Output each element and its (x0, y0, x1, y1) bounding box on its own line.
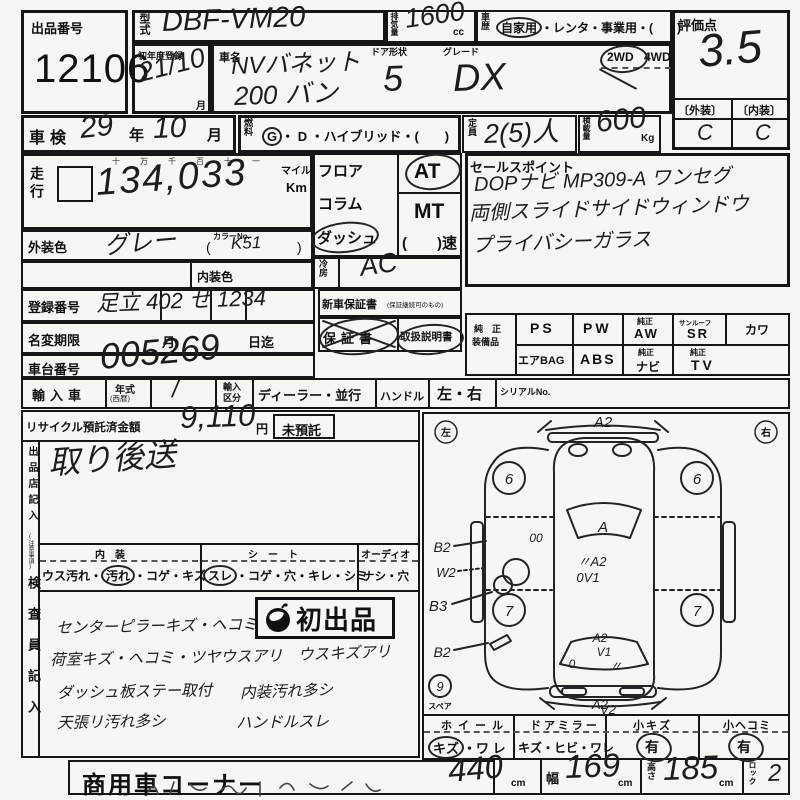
inspector-note-1: センターピラーキズ・ヘコミ (56, 612, 258, 638)
color-no-value: K51 (231, 233, 262, 254)
warranty-note: (保証継続可のもの) (387, 299, 443, 309)
name-change-label: 名変期限 (28, 330, 80, 349)
not-deposited-box: 未預託 (273, 414, 335, 439)
seller-label: 出品店記入 (24, 446, 39, 538)
ac-label: 冷房 (317, 259, 330, 286)
lock-label: ロック (747, 761, 758, 793)
lot-label: 出品番号 (31, 18, 83, 37)
door-shape-label: ドア形状 (371, 45, 407, 58)
inspector-note-4: 天張リ汚れ多シ (57, 709, 166, 733)
height-label: 高さ (645, 762, 658, 792)
handle-label: ハンドル (380, 388, 424, 404)
shift-floor: フロア (318, 160, 363, 181)
name-change-day: 日迄 (248, 332, 274, 351)
width-value: 169 (564, 746, 620, 786)
interior-grade-label: 〔内装〕 (737, 102, 781, 118)
mark-front-a2: A2 (593, 414, 613, 431)
audio-check-header: オーディオ (361, 546, 410, 561)
history-label: 車歴 (479, 12, 492, 41)
seat-check-selected: スレ (203, 565, 237, 586)
equip-airbag: エアBAG (518, 352, 564, 368)
equipment-label: 純 正 (474, 322, 501, 335)
mark-rear-0: 0 (569, 657, 576, 671)
width-label: 幅 (546, 768, 559, 787)
inspector-note-3b: 内装汚れ多シ (240, 678, 334, 703)
mark-wheel-fl: 6 (505, 471, 514, 488)
shaken-year: 29 (78, 109, 115, 146)
handle-value: 左・右 (437, 383, 482, 404)
displacement-label: 排気量 (389, 12, 400, 41)
damage-blob-b3 (503, 559, 529, 585)
import-division: ディーラー・並行 (258, 385, 361, 404)
inspector-note-2b: ウスキズアリ (298, 640, 392, 665)
warranty-label: 新車保証書 (322, 296, 377, 312)
shaken-year-suffix: 年 (129, 124, 144, 145)
fuel-label: 燃料 (242, 118, 255, 150)
import-year-value: / (172, 376, 180, 404)
ac-value: AC (358, 247, 399, 283)
ext-color-label: 外装色 (28, 237, 67, 256)
mark-wheel-rr: 7 (693, 603, 702, 620)
diagram-right-label: 右 (760, 426, 771, 439)
recycle-amount: 9,110 (179, 397, 255, 436)
grade-value: DX (452, 56, 506, 101)
displacement-unit: cc (453, 27, 464, 38)
mark-windshield-a: A (597, 519, 608, 536)
diagram-left-label: 左 (440, 426, 451, 439)
equip-tv: TV (691, 357, 715, 373)
mark-b2-lower: B2 (433, 644, 450, 660)
history-selected: 自家用 (496, 17, 542, 38)
fuel-selected: G (262, 127, 282, 146)
inspector-note-2: 荷室キズ・ヘコミ・ツヤウスアリ (50, 644, 283, 670)
inspector-note-4b: ハンドルスレ (236, 709, 329, 733)
equip-leather: カワ (745, 321, 769, 338)
spare-label: スペア (428, 702, 451, 711)
stamp-text: 初出品 (296, 600, 377, 637)
model-code-label: 型式 (136, 13, 152, 41)
shaken-month: 10 (152, 111, 187, 146)
exterior-grade-label: 〔外装〕 (678, 102, 722, 118)
equip-abs: ABS (580, 351, 616, 367)
load-value: 600 (594, 101, 647, 140)
cutoff-handwriting (130, 774, 470, 800)
damage-sliver-b2 (490, 635, 511, 650)
length-value: 440 (446, 747, 504, 790)
seat-check-header: シ ー ト (248, 546, 298, 561)
capacity-label: 定員 (466, 118, 479, 150)
recycle-yen: 円 (256, 420, 268, 437)
equip-sr: SR (687, 326, 709, 341)
mark-wheel-rl: 7 (505, 603, 514, 620)
model-code-value: DBF-VM20 (161, 1, 305, 39)
equip-aw: AW (634, 326, 659, 341)
auction-sheet: 出品番号 12106 型式 DBF-VM20 排気量 1600 cc 車歴 自家… (0, 0, 800, 800)
mark-w2: W2 (436, 565, 456, 580)
lock-value: 2 (768, 760, 782, 788)
mark-center-0v1: 0V1 (576, 570, 599, 585)
mark-b3: B3 (429, 598, 448, 615)
mark-rear-tick: 〃 (610, 659, 622, 673)
drive-4wd: 4WD (644, 50, 671, 64)
exterior-grade: C (697, 119, 714, 146)
mileage-unit-km: Km (286, 180, 307, 195)
shift-column: コラム (318, 193, 363, 214)
damage-diagram: 左 右 A2 00 A 〃A2 0V1 6 6 7 7 B2 W2 B3 B2 … (424, 414, 788, 715)
not-deposited-label: 未預託 (282, 420, 321, 439)
mark-wheel-fr: 6 (693, 471, 702, 488)
interior-check-header: 内 装 (95, 546, 125, 561)
score-value: 3.5 (696, 19, 764, 78)
lot-box: 出品番号 12106 (21, 10, 128, 114)
height-value: 185 (662, 748, 718, 788)
first-reg-suffix: 月 (196, 97, 206, 112)
mark-rear-a2: A2 (592, 631, 608, 645)
reg-no-label: 登録番号 (28, 297, 80, 316)
car-name-line2: 200 バン (233, 72, 338, 113)
equip-pw: PW (583, 320, 612, 336)
inspector-label: 検査員記入 (24, 576, 43, 756)
serial-label: シリアルNo. (500, 385, 550, 398)
reg-no-value: 足立 402 せ 1234 (95, 280, 266, 318)
chassis-label: 車台番号 (28, 359, 80, 378)
stamp-ball-icon (264, 603, 292, 633)
interior-check-selected: 汚れ (101, 565, 135, 586)
grade-label: グレード (443, 45, 479, 58)
shift-speed: ( )速 (402, 232, 457, 253)
equip-ps: PS (530, 320, 555, 336)
mark-center-a2: 〃A2 (578, 554, 608, 569)
audio-check-options: ナシ・穴 (363, 568, 409, 584)
mark-rear-v1: V1 (597, 645, 612, 659)
seller-note: 取り後送 (46, 429, 177, 484)
import-label: 輸入車 (32, 385, 86, 404)
shaken-month-suffix: 月 (207, 124, 222, 145)
first-listing-stamp: 初出品 (255, 597, 395, 639)
ext-color-value: グレー (102, 220, 177, 261)
interior-grade: C (755, 119, 772, 146)
capacity-value: 2(5)人 (483, 109, 559, 151)
equip-navi: ナビ (636, 358, 660, 375)
mileage-checkbox (57, 166, 93, 202)
mark-spare-9: 9 (436, 679, 443, 694)
load-label: 積載量 (581, 116, 592, 151)
history-options: ・レンタ・事業用・( ) (541, 21, 681, 35)
inspector-note-3: ダッシュ板ステー取付 (57, 678, 212, 703)
mark-00: 00 (529, 531, 543, 545)
shaken-label: 車検 (29, 124, 71, 148)
mileage-label: 走行 (27, 166, 47, 216)
door-count: 5 (382, 57, 403, 100)
mileage-unit-mile: マイル (281, 162, 311, 177)
shift-mt: MT (414, 200, 444, 224)
fuel-options: ・ D ・ハイブリッド・( ) (281, 129, 449, 144)
mark-b2-upper: B2 (433, 539, 450, 555)
